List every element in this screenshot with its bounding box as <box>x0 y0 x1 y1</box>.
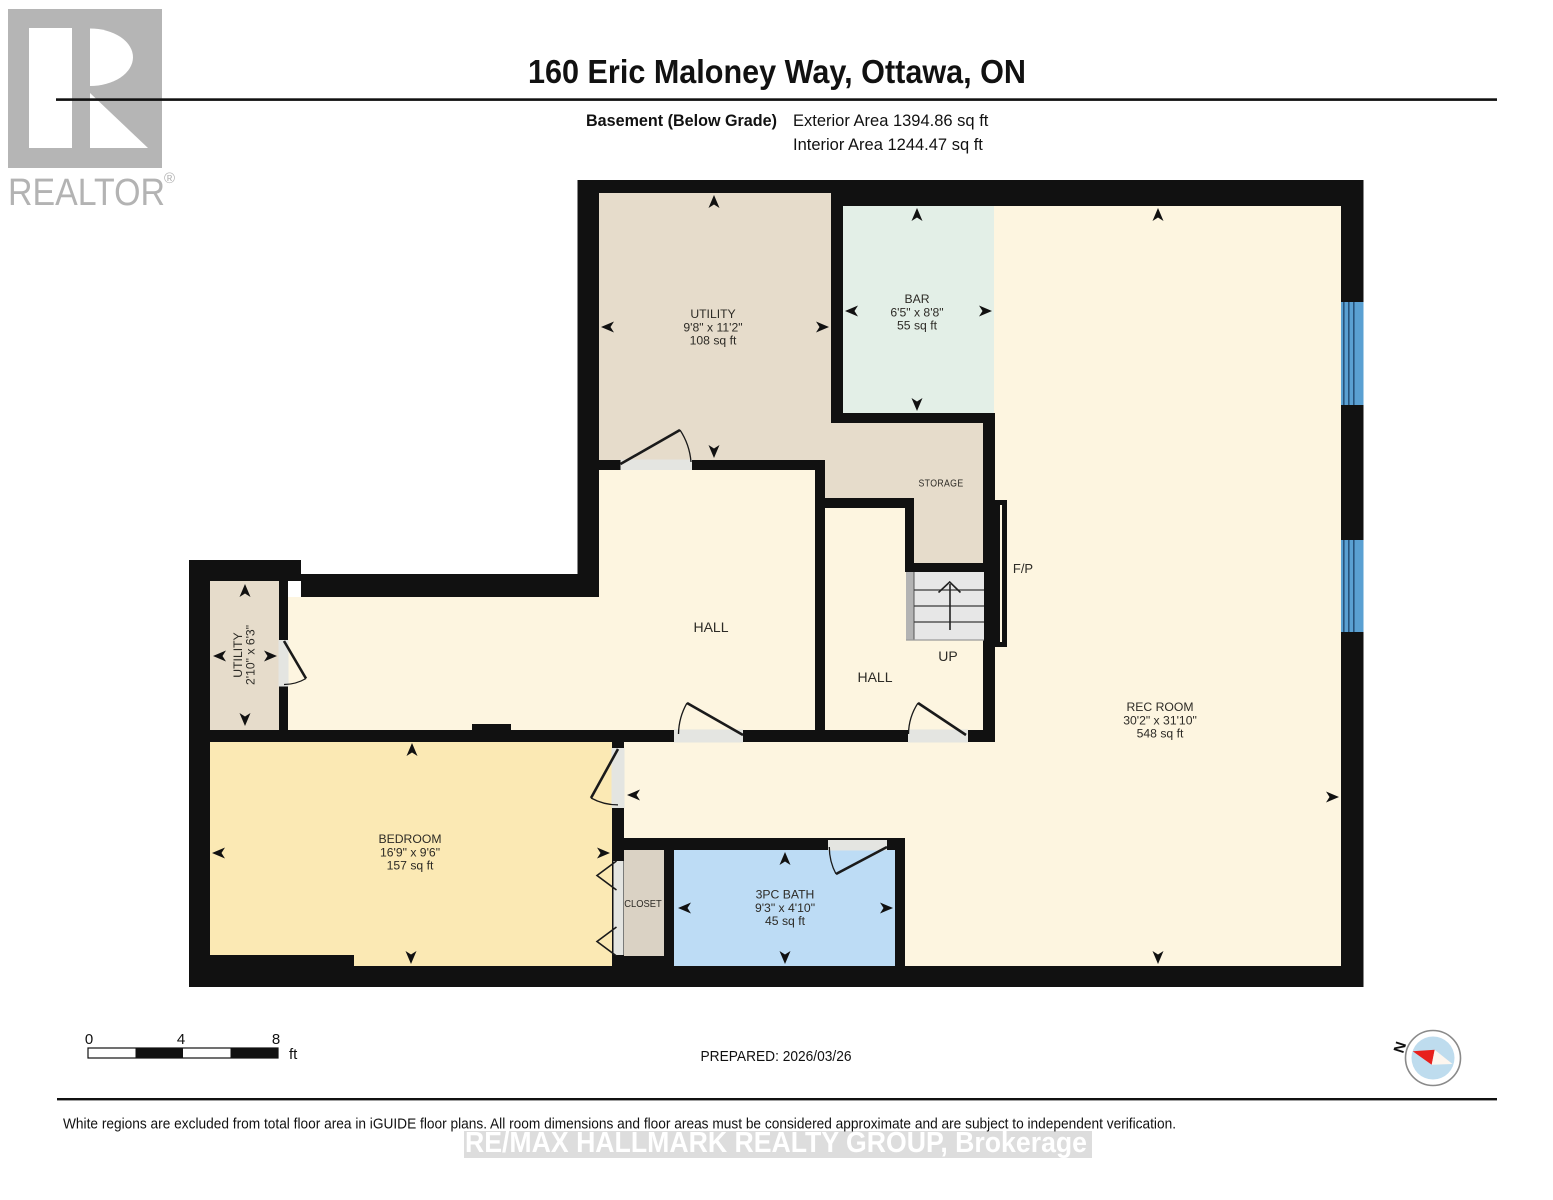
svg-text:9'8" x 11'2": 9'8" x 11'2" <box>683 321 742 335</box>
svg-text:157 sq ft: 157 sq ft <box>387 859 434 873</box>
svg-text:3PC BATH: 3PC BATH <box>756 888 815 902</box>
svg-text:45 sq ft: 45 sq ft <box>765 914 806 928</box>
svg-text:2'10" x 6'3": 2'10" x 6'3" <box>244 625 258 685</box>
svg-text:HALL: HALL <box>693 619 728 635</box>
svg-text:55 sq ft: 55 sq ft <box>897 319 938 333</box>
svg-text:REALTOR: REALTOR <box>8 172 165 214</box>
svg-text:160 Eric Maloney Way, Ottawa,: 160 Eric Maloney Way, Ottawa, ON <box>528 54 1026 91</box>
svg-text:CLOSET: CLOSET <box>624 899 662 910</box>
svg-text:6'5" x 8'8": 6'5" x 8'8" <box>890 306 943 320</box>
svg-text:548 sq ft: 548 sq ft <box>1137 727 1184 741</box>
svg-text:F/P: F/P <box>1013 561 1033 576</box>
svg-text:UTILITY: UTILITY <box>690 307 735 321</box>
svg-text:ft: ft <box>289 1046 298 1063</box>
svg-text:N: N <box>1391 1040 1411 1056</box>
svg-text:108 sq ft: 108 sq ft <box>690 334 737 348</box>
svg-text:REC ROOM: REC ROOM <box>1126 700 1193 714</box>
svg-text:BEDROOM: BEDROOM <box>379 832 442 846</box>
svg-text:Interior Area 1244.47 sq ft: Interior Area 1244.47 sq ft <box>793 136 983 154</box>
svg-text:0: 0 <box>85 1031 93 1048</box>
svg-text:BAR: BAR <box>904 292 929 306</box>
svg-text:4: 4 <box>177 1031 185 1048</box>
svg-text:STORAGE: STORAGE <box>919 478 964 490</box>
svg-text:White regions are excluded fro: White regions are excluded from total fl… <box>63 1116 1176 1133</box>
svg-text:HALL: HALL <box>857 669 892 685</box>
svg-text:Exterior Area 1394.86 sq ft: Exterior Area 1394.86 sq ft <box>793 112 989 130</box>
svg-text:16'9" x 9'6": 16'9" x 9'6" <box>380 846 440 860</box>
svg-text:Basement (Below Grade): Basement (Below Grade) <box>586 111 777 130</box>
svg-text:9'3" x 4'10": 9'3" x 4'10" <box>755 901 815 915</box>
svg-text:®: ® <box>164 170 175 187</box>
svg-text:UP: UP <box>938 648 957 664</box>
svg-text:PREPARED: 2026/03/26: PREPARED: 2026/03/26 <box>701 1048 852 1065</box>
svg-text:8: 8 <box>272 1031 280 1048</box>
svg-text:30'2" x 31'10": 30'2" x 31'10" <box>1123 714 1197 728</box>
